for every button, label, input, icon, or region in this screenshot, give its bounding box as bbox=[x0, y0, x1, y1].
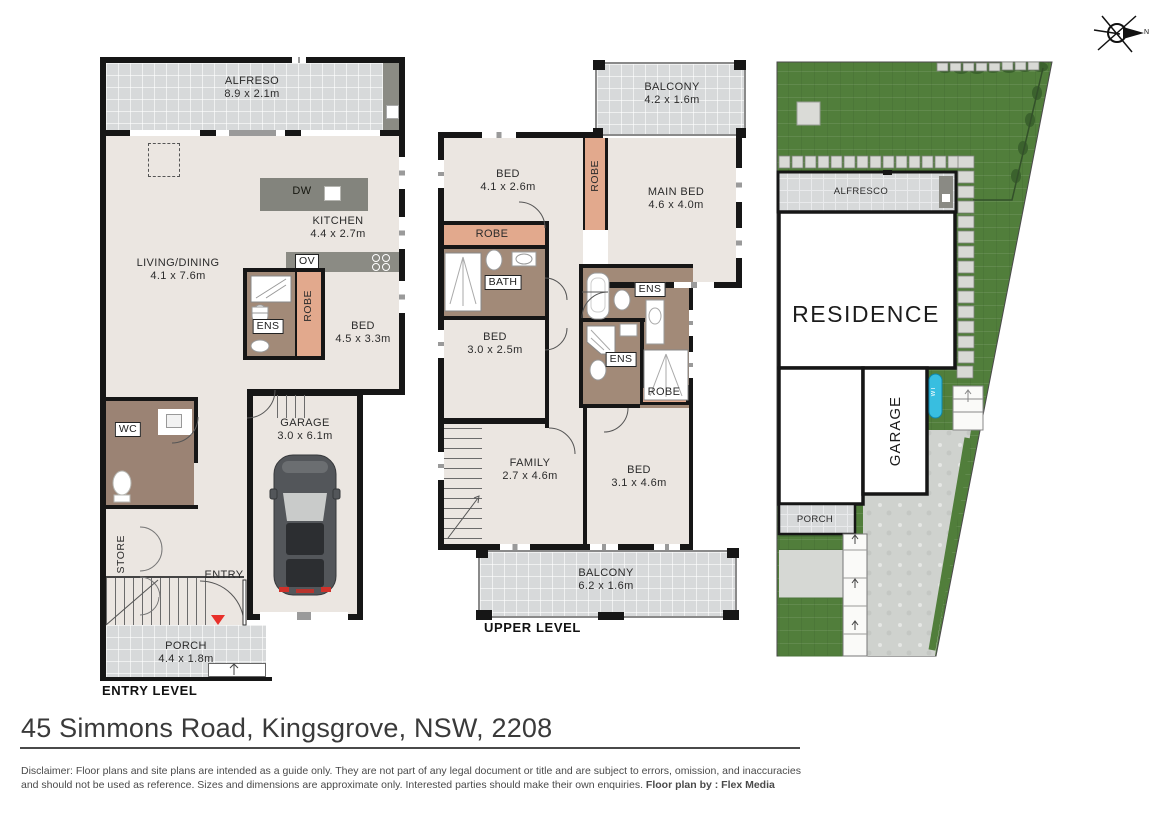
site-residence-label: RESIDENCE bbox=[792, 308, 940, 321]
garden-strip bbox=[779, 536, 843, 550]
stove-icon bbox=[373, 255, 380, 262]
bed3-label: BED3.1 x 4.6m bbox=[611, 464, 666, 490]
entry-level-caption: ENTRY LEVEL bbox=[102, 683, 197, 698]
address-title: 45 Simmons Road, Kingsgrove, NSW, 2208 bbox=[21, 713, 552, 744]
disclaimer: Disclaimer: Floor plans and site plans a… bbox=[21, 764, 811, 792]
credit: Floor plan by : Flex Media bbox=[646, 779, 775, 791]
wc-label: WC bbox=[115, 422, 141, 437]
bath-toilet-icon bbox=[486, 250, 502, 270]
north-arrow-icon bbox=[1090, 8, 1150, 58]
robe-label: ROBE bbox=[302, 290, 314, 322]
site-garage-label: GARAGE bbox=[887, 396, 904, 466]
balcony-bottom-label: BALCONY6.2 x 1.6m bbox=[578, 567, 633, 593]
front-steps bbox=[843, 534, 867, 656]
balcony-top-label: BALCONY4.2 x 1.6m bbox=[644, 81, 699, 107]
site-alfresco-label: ALFRESCO bbox=[834, 185, 888, 198]
entry-fixtures-layer bbox=[100, 57, 412, 702]
bath-door-arc bbox=[545, 278, 567, 300]
bed-label: BED4.5 x 3.3m bbox=[335, 320, 390, 346]
store-doors bbox=[140, 527, 162, 615]
bed3-door-arc bbox=[604, 408, 628, 432]
site-plan: ALFRESCO RESIDENCE GARAGE WT PORCH bbox=[775, 58, 1060, 660]
divider-line bbox=[20, 747, 800, 749]
upper-level-caption: UPPER LEVEL bbox=[484, 620, 581, 635]
stairs-arrow bbox=[448, 496, 479, 538]
site-porch-label: PORCH bbox=[797, 513, 833, 526]
water-tank-label: WT bbox=[931, 386, 937, 396]
bath-label: BATH bbox=[485, 275, 522, 290]
basin-icon bbox=[251, 340, 269, 352]
disclaimer-line1: Disclaimer: Floor plans and site plans a… bbox=[21, 765, 801, 777]
north-label: N bbox=[1144, 29, 1149, 36]
porch-label: PORCH4.4 x 1.8m bbox=[158, 640, 213, 666]
ens1-toilet-icon bbox=[614, 290, 630, 310]
living-label: LIVING/DINING4.1 x 7.6m bbox=[137, 257, 220, 283]
vanity-icon bbox=[646, 300, 664, 344]
entry-level-plan: DW OV bbox=[100, 57, 412, 702]
store-label: STORE bbox=[115, 535, 127, 573]
ens2-toilet-icon bbox=[590, 360, 606, 380]
entry-door-arc bbox=[200, 581, 244, 625]
site-plan-graphics bbox=[775, 58, 1060, 660]
garage-door-arc bbox=[247, 390, 275, 418]
alfresco-label: ALFRESO8.9 x 2.1m bbox=[224, 75, 279, 101]
garden-patch bbox=[779, 598, 843, 656]
step-arrow-icon bbox=[230, 664, 238, 675]
disclaimer-line2: and should not be used as reference. Siz… bbox=[21, 779, 646, 791]
family-door-arc bbox=[549, 428, 575, 454]
floor-plan-page: DW OV bbox=[0, 0, 1151, 814]
garage-label: GARAGE3.0 x 6.1m bbox=[277, 417, 332, 443]
upper-level-plan: BALCONY4.2 x 1.6m BED4.1 x 2.6m ROBE MAI… bbox=[438, 60, 753, 645]
wc-toilet-icon bbox=[113, 471, 131, 495]
ens2-basin-icon bbox=[620, 324, 637, 336]
car-icon bbox=[270, 455, 340, 595]
site-residence-lower bbox=[779, 368, 863, 504]
ens-label: ENS bbox=[253, 319, 284, 334]
robe-main-label: ROBE bbox=[648, 386, 681, 399]
side-path bbox=[779, 550, 843, 598]
stepping-path bbox=[957, 156, 974, 378]
bed2-label: BED3.0 x 2.5m bbox=[467, 331, 522, 357]
bed2-door-arc bbox=[545, 328, 567, 350]
robe-horizontal-label: ROBE bbox=[476, 228, 509, 241]
site-residence bbox=[779, 212, 955, 368]
entry-door-leaf bbox=[243, 580, 246, 625]
family-label: FAMILY2.7 x 4.6m bbox=[502, 457, 557, 483]
main-bed-label: MAIN BED4.6 x 4.0m bbox=[648, 186, 704, 212]
kitchen-label: KITCHEN4.4 x 2.7m bbox=[310, 215, 365, 241]
shed bbox=[797, 102, 820, 125]
compass: N bbox=[1090, 8, 1150, 58]
bed1-door-arc bbox=[519, 202, 545, 228]
entry-label: ENTRY bbox=[204, 569, 243, 582]
bed1-label: BED4.1 x 2.6m bbox=[480, 168, 535, 194]
wc-door-arc bbox=[172, 417, 198, 443]
robe-vertical-label: ROBE bbox=[589, 160, 601, 192]
ens2-label: ENS bbox=[606, 352, 637, 367]
ens1-label: ENS bbox=[635, 282, 666, 297]
